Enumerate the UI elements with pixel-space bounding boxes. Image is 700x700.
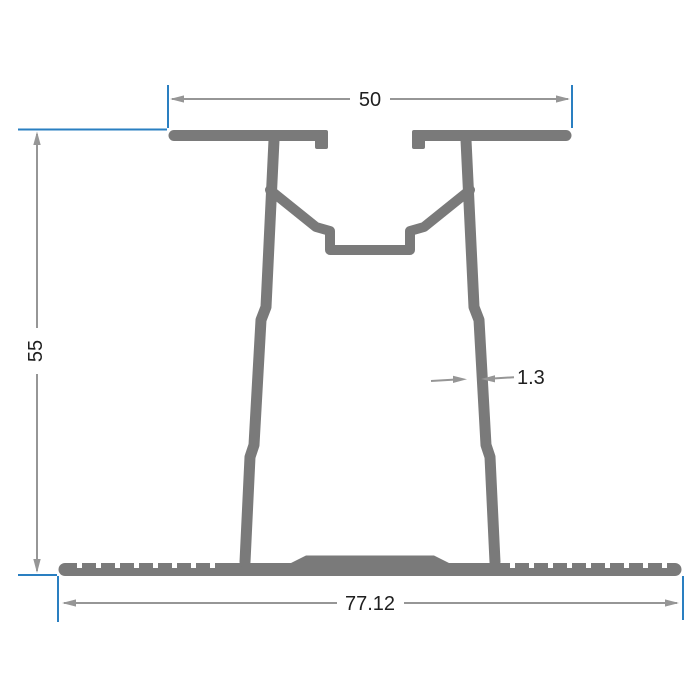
slot-lip-right bbox=[412, 130, 425, 149]
arrowhead-point-right-icon bbox=[453, 376, 467, 383]
dimension-top-width: 50 bbox=[168, 85, 572, 128]
screw-channel bbox=[270, 190, 470, 250]
base-center-hump bbox=[289, 556, 451, 574]
dimension-height: 55 bbox=[18, 130, 167, 576]
dimension-top-width-label: 50 bbox=[359, 89, 381, 111]
dimension-wall-thickness-label: 1.3 bbox=[517, 367, 545, 389]
drawing-canvas: 50 55 1.3 77.12 bbox=[0, 0, 700, 700]
arrowhead-left-icon bbox=[170, 95, 184, 102]
arrowhead-down-icon bbox=[33, 559, 40, 573]
web-left bbox=[245, 140, 274, 562]
slot-lip-left bbox=[315, 130, 328, 149]
dimension-bottom-width: 77.12 bbox=[58, 576, 683, 622]
leader-line-right bbox=[495, 377, 514, 378]
dimension-height-label: 55 bbox=[25, 340, 47, 362]
web-right bbox=[466, 140, 495, 562]
profile-drawing: 50 55 1.3 77.12 bbox=[0, 0, 700, 700]
arrowhead-right-icon bbox=[665, 599, 679, 606]
arrowhead-right-icon bbox=[556, 95, 570, 102]
arrowhead-up-icon bbox=[33, 132, 40, 146]
extrusion-profile bbox=[65, 130, 675, 573]
arrowhead-left-icon bbox=[62, 599, 76, 606]
dimension-bottom-width-label: 77.12 bbox=[345, 593, 395, 615]
leader-line-left bbox=[431, 380, 454, 381]
